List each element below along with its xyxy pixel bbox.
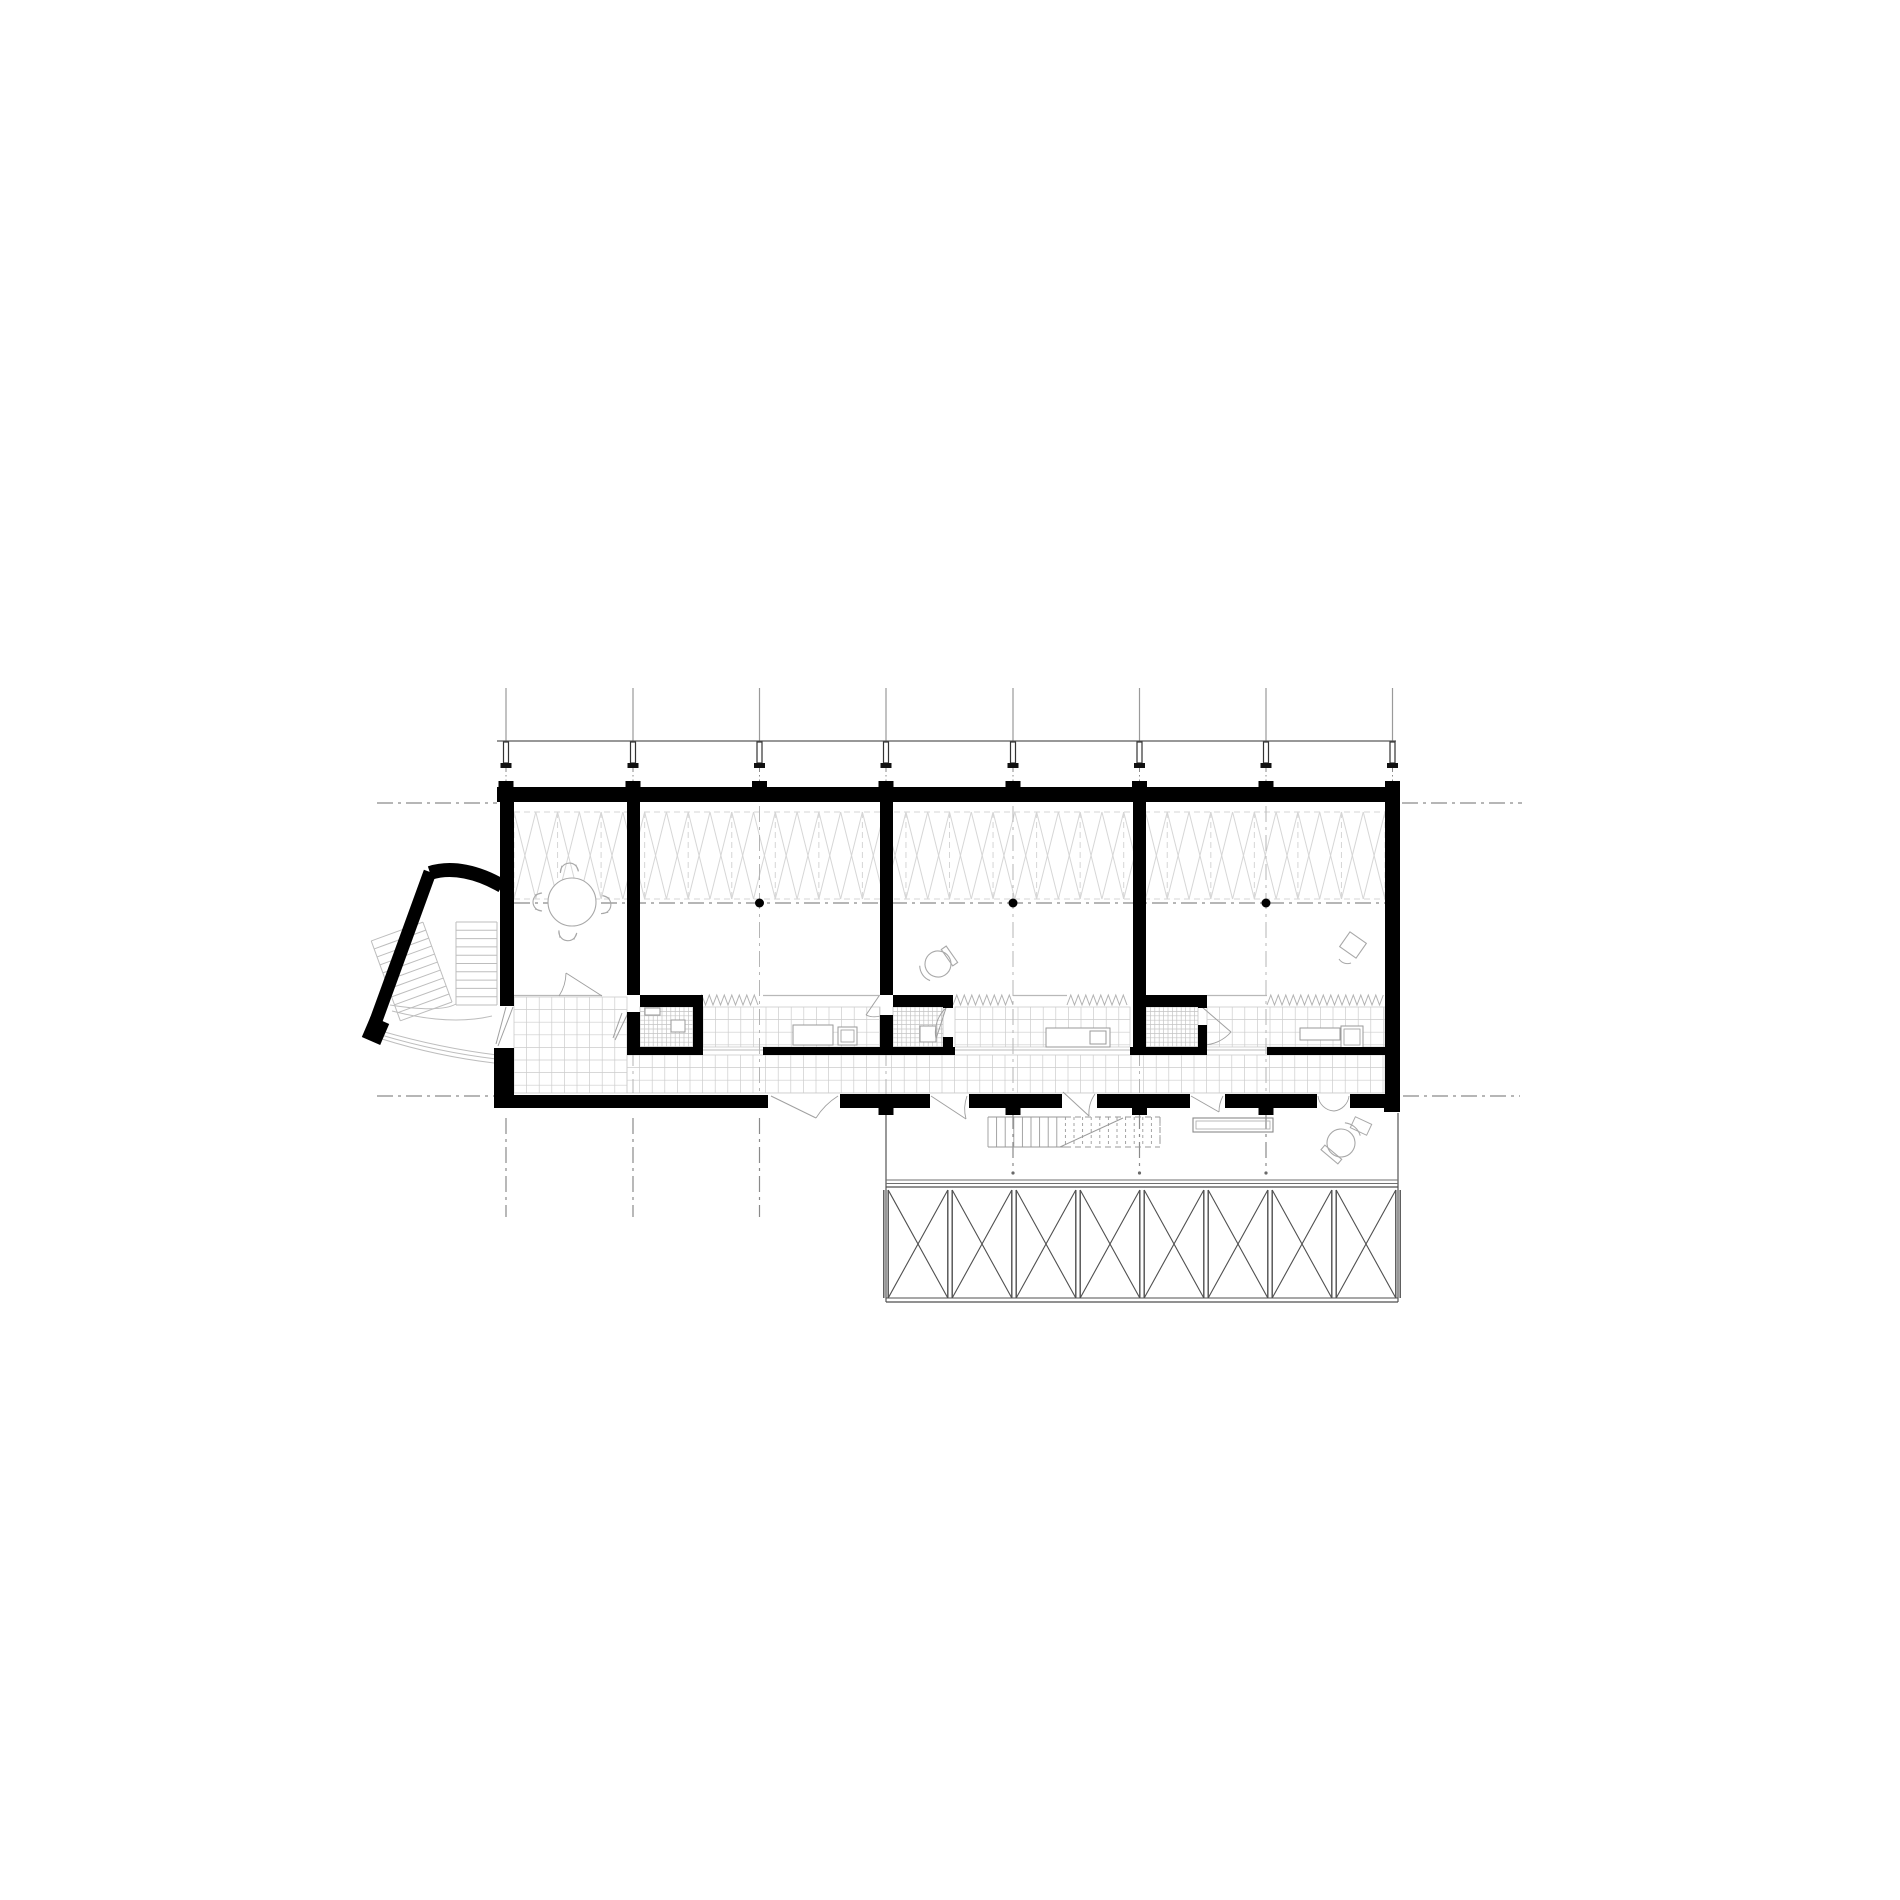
strip-south-wall-2: [763, 1047, 955, 1055]
facade-door-4-leaf: [1191, 1096, 1219, 1112]
bath3-door-leaf: [936, 1008, 946, 1039]
partition-stub-g2: [627, 1012, 640, 1048]
facade-door-2-swing-arc: [965, 1096, 967, 1119]
steel-post-2: [631, 742, 636, 763]
table-chair: [558, 930, 577, 941]
column-pad-2: [626, 781, 641, 787]
partition-wall-g2: [627, 800, 640, 995]
south-deck: [884, 1113, 1400, 1302]
room3-sink: [1090, 1031, 1106, 1044]
desk-room4-chair-arc: [1339, 959, 1351, 964]
table-chair-back: [533, 893, 542, 911]
room1-south-door-swing-arc: [559, 973, 566, 996]
steel-post-flange-7: [1261, 763, 1272, 768]
floor-plan-canvas: [0, 0, 1900, 1900]
steel-post-flange-1: [501, 763, 512, 768]
corridor-tile-border: [514, 997, 627, 1093]
axis-column-dot: [1262, 899, 1271, 908]
grid-line-end-dot: [1138, 1171, 1141, 1174]
table-chair-side: [601, 912, 608, 915]
facade-door-5-swing-arc: [1334, 1096, 1349, 1111]
table-chair: [560, 862, 579, 873]
zigzag-shelf-symbol: [1267, 995, 1383, 1005]
room2-strip-door-swing-arc: [866, 1015, 880, 1017]
steel-post-1: [504, 742, 509, 763]
column-pad-3: [752, 781, 767, 787]
room2-counter: [793, 1025, 833, 1045]
right-exterior-wall: [1385, 787, 1400, 1112]
room4-counter: [1300, 1028, 1340, 1040]
strip-south-wall-4: [1267, 1047, 1386, 1055]
top-exterior-wall: [497, 787, 1400, 802]
facade-panel-stub: [879, 1107, 894, 1115]
partition-wall-g6: [1133, 800, 1146, 1048]
table-chair: [601, 896, 612, 915]
facade-door-5-swing-arc: [1318, 1096, 1334, 1111]
stair-winder-arc: [381, 1031, 497, 1055]
facade-sliding-panel: [840, 1094, 930, 1108]
partition-wall-g4: [880, 800, 893, 995]
facade-sliding-panel: [1225, 1094, 1317, 1108]
bath3-toilet: [920, 1026, 936, 1042]
table-chair-side: [560, 866, 563, 873]
facade-panel-stub: [1259, 1107, 1274, 1115]
facade-door-4-swing-arc: [1219, 1096, 1223, 1112]
steel-post-flange-6: [1134, 763, 1145, 768]
stair-winder-arc: [382, 1039, 494, 1063]
table-chair-back: [601, 896, 612, 915]
table-chair-back: [558, 930, 577, 941]
axis-column-dot: [1009, 899, 1018, 908]
vestibule-angled-wall: [374, 872, 430, 1026]
bath4-east-wall: [1198, 1025, 1207, 1048]
deck-armchair: [1319, 1118, 1366, 1166]
stair-winder-arc: [381, 1035, 496, 1059]
furniture: [533, 862, 1366, 985]
column-pad-7: [1259, 781, 1274, 787]
stair-tread: [392, 978, 444, 997]
office-chair-room3: [915, 944, 959, 986]
vestibule-curved-wall: [430, 870, 502, 886]
steel-post-7: [1264, 742, 1269, 763]
zigzag-shelf-symbol: [953, 995, 1013, 1005]
desk-room4: [1340, 932, 1367, 958]
table-chair: [533, 893, 542, 911]
axis-column-dot: [755, 899, 764, 908]
column-pad-4: [879, 781, 894, 787]
north-canopy: [497, 741, 1400, 787]
sanitary-fixtures: [645, 1008, 1363, 1048]
facade-door-1-swing-arc: [816, 1096, 838, 1118]
bath4-north-wall: [1146, 995, 1207, 1007]
zigzag-shelf-symbol: [1067, 995, 1127, 1005]
bath4-east-stub-top: [1198, 995, 1207, 1008]
facade-sliding-panel: [969, 1094, 1062, 1108]
bath1-toilet: [671, 1020, 685, 1032]
facade-sliding-panel: [1097, 1094, 1190, 1108]
roof-truss-pattern: [514, 812, 1385, 899]
steel-post-flange-3: [754, 763, 765, 768]
office-chair-seat: [920, 946, 956, 982]
facade-sliding-panel: [1350, 1094, 1386, 1108]
steel-post-flange-2: [628, 763, 639, 768]
stair-tread: [397, 994, 449, 1013]
facade-door-3-leaf: [1063, 1092, 1089, 1116]
column-pad-6: [1132, 781, 1147, 787]
bath1-east-wall: [693, 1005, 703, 1048]
zigzag-shelf-symbol: [698, 995, 758, 1005]
vestibule-wall-end-stub: [371, 1020, 380, 1041]
steel-post-8: [1390, 742, 1395, 763]
room2-strip-door-leaf: [866, 996, 879, 1015]
left-exterior-wall: [500, 787, 514, 1006]
strip-south-wall-1: [627, 1047, 703, 1055]
floor-plan-drawing: [0, 0, 1900, 1900]
strip-south-wall-3: [1130, 1047, 1207, 1055]
partition-stub-g4: [880, 1015, 893, 1048]
steel-post-6: [1137, 742, 1142, 763]
facade-panel-stub: [1132, 1107, 1147, 1115]
bath3-east-stub-bottom: [943, 1037, 953, 1048]
steel-post-flange-5: [1008, 763, 1019, 768]
bath3-east-stub-top: [943, 995, 953, 1008]
table-chair-back: [560, 862, 579, 873]
grid-line-end-dot: [1011, 1171, 1014, 1174]
steel-post-4: [884, 742, 889, 763]
bath1-sink: [645, 1008, 660, 1015]
steel-post-5: [1011, 742, 1016, 763]
grid-line-end-dot: [1264, 1171, 1267, 1174]
stair-tread: [395, 986, 447, 1005]
facade-panel-stub: [1006, 1107, 1021, 1115]
steel-post-flange-8: [1387, 763, 1398, 768]
table-chair-side: [574, 933, 577, 940]
round-table: [548, 878, 596, 926]
column-pad-5: [1006, 781, 1021, 787]
steel-post-3: [757, 742, 762, 763]
column-pad-8: [1385, 781, 1400, 787]
stair-winder-arc: [390, 1004, 456, 1009]
room1-south-door-leaf: [566, 973, 602, 996]
deck-bench: [1193, 1118, 1273, 1132]
facade-door-3-swing-arc: [1089, 1094, 1095, 1116]
steel-post-flange-4: [881, 763, 892, 768]
facade-door-1-leaf: [771, 1096, 816, 1118]
deck-bench-inner: [1196, 1121, 1270, 1129]
facade-door-2-leaf: [931, 1096, 966, 1119]
bottom-right-corner: [1384, 1095, 1400, 1112]
bottom-exterior-wall-solid: [498, 1095, 768, 1108]
column-pad-1: [499, 781, 514, 787]
